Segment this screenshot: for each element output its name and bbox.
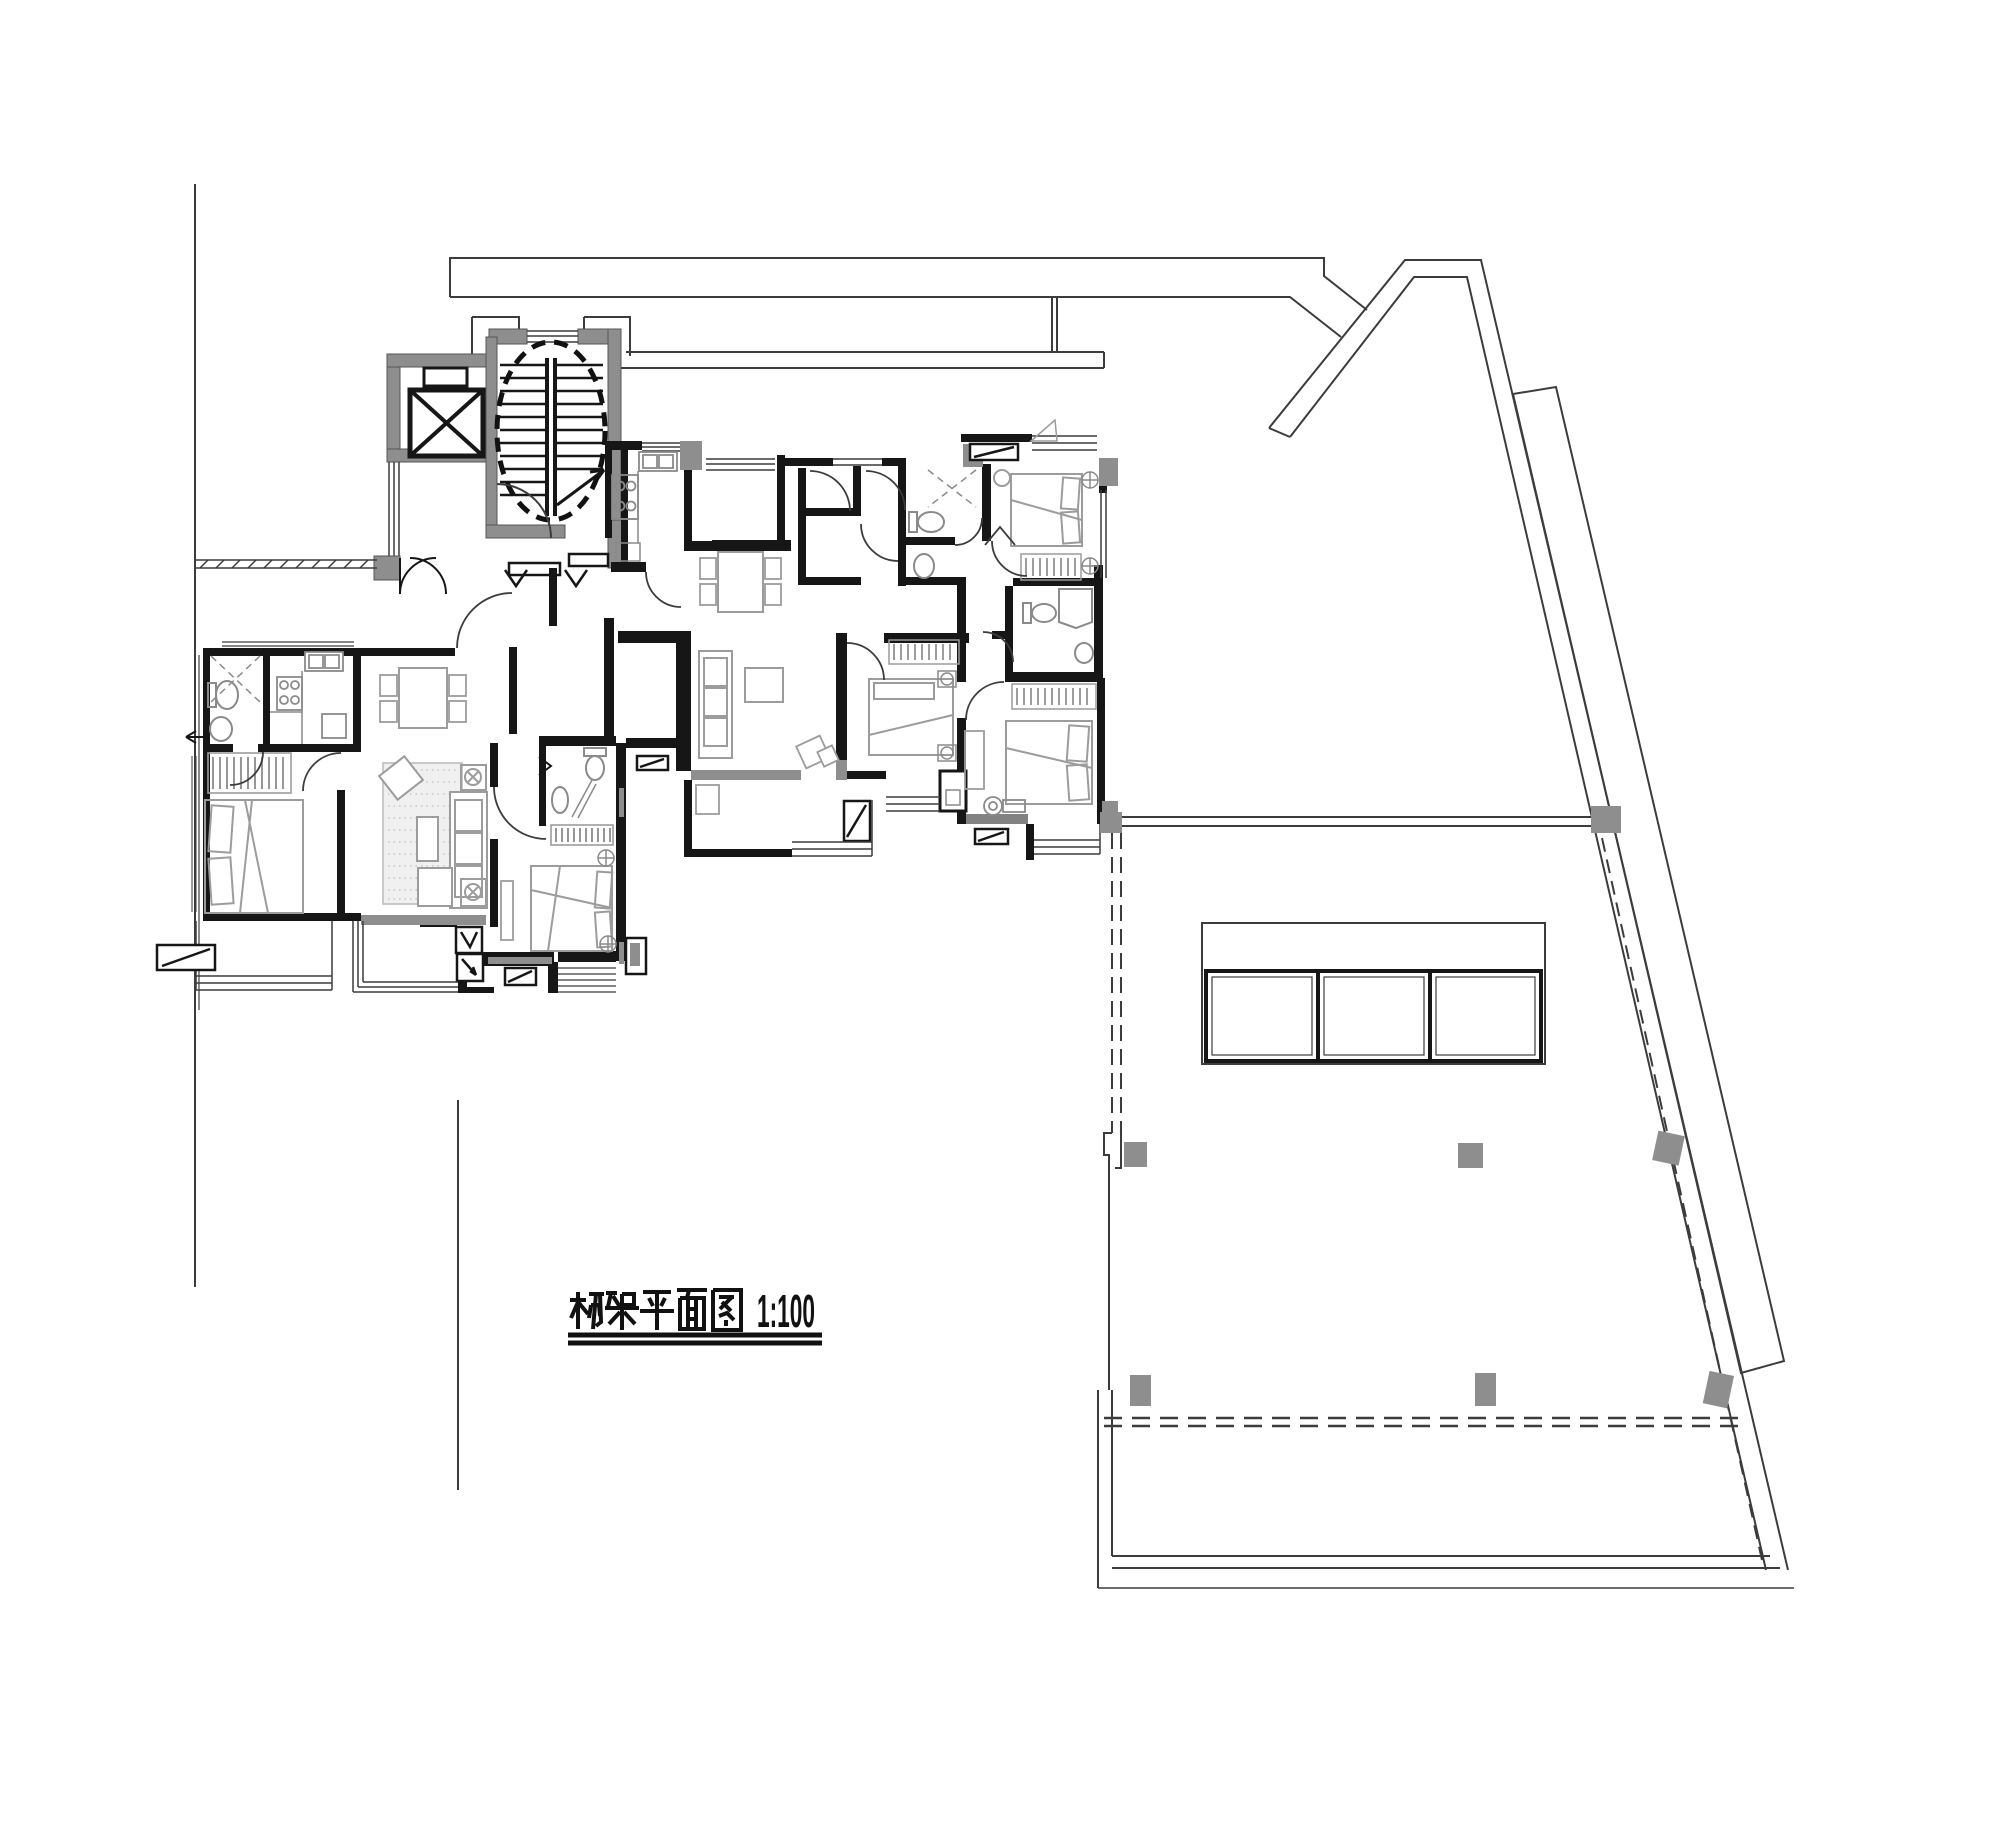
svg-text:1:100: 1:100 [757,1285,815,1337]
